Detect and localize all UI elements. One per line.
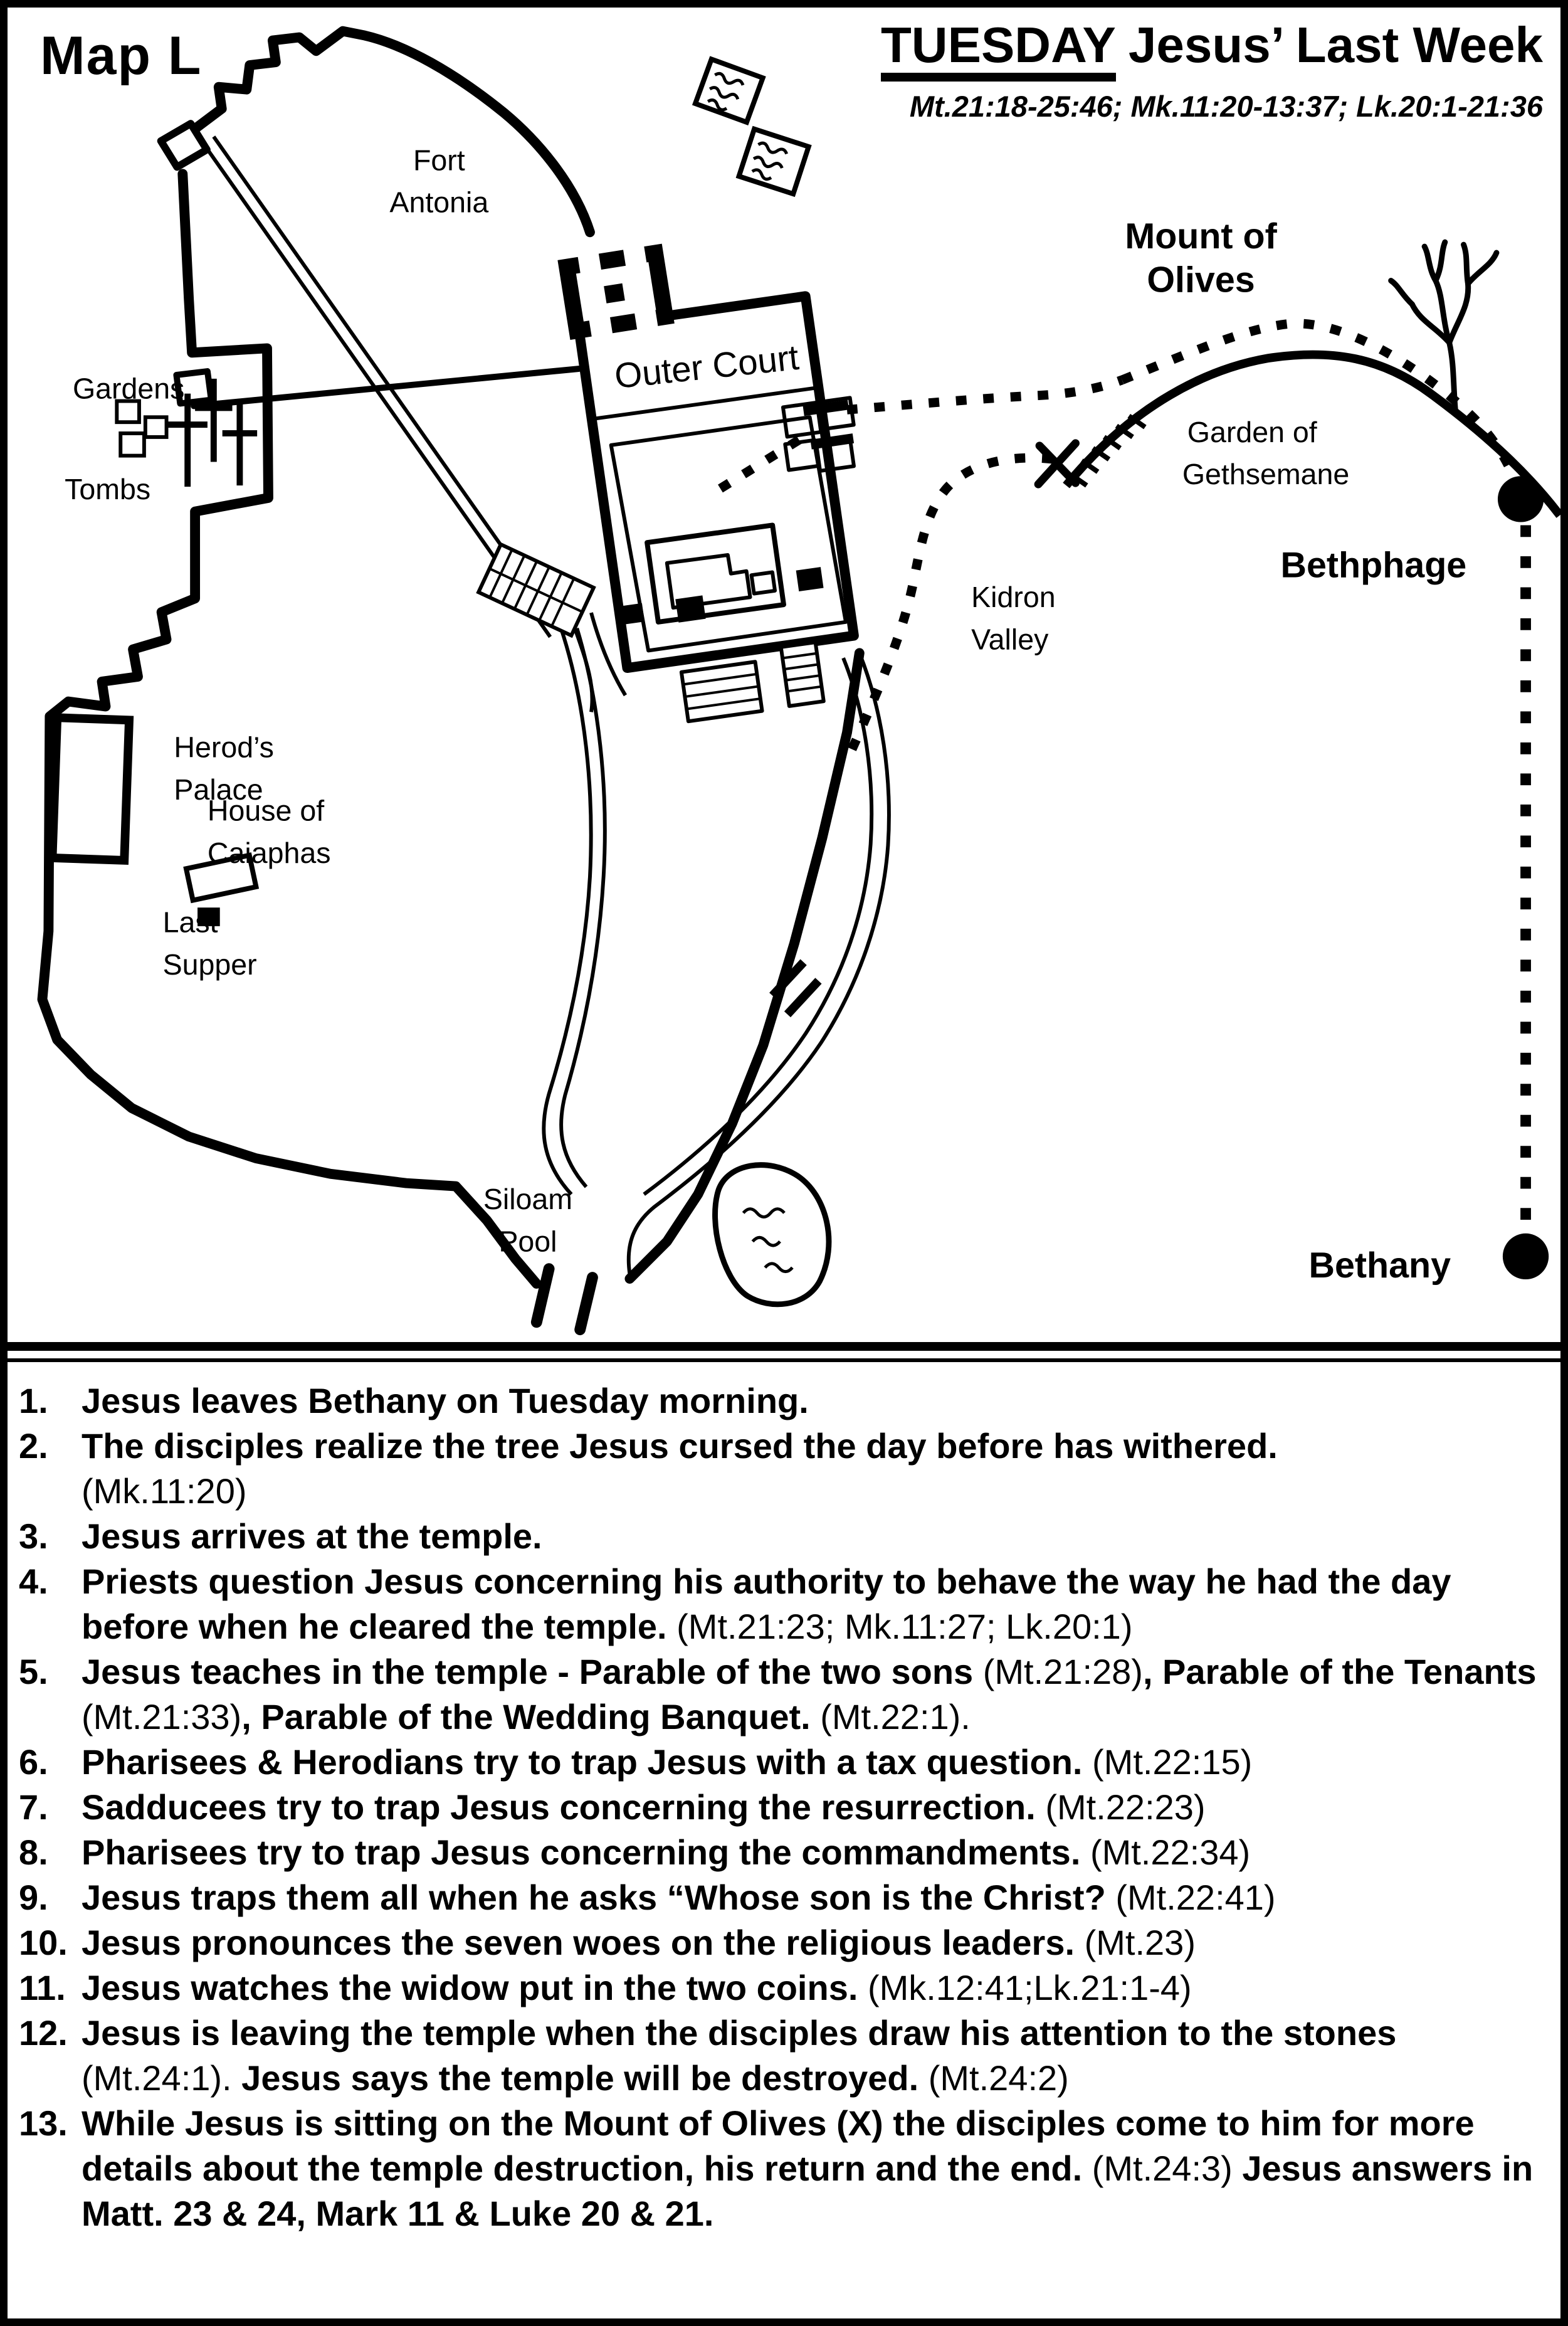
event-text-part: Pharisees & Herodians try to trap Jesus … [82, 1742, 1092, 1782]
event-item: 4.Priests question Jesus concerning his … [19, 1559, 1544, 1649]
label-fort-antonia: Antonia [389, 186, 488, 219]
event-text-part: Jesus pronounces the seven woes on the r… [82, 1923, 1085, 1962]
event-scripture-ref: (Mt.22:15) [1092, 1742, 1252, 1782]
garden-square-icon [117, 401, 166, 456]
event-scripture-ref: (Mt.21:33) [82, 1697, 241, 1737]
event-item: 12.Jesus is leaving the temple when the … [19, 2011, 1544, 2101]
map-section: Map L TUESDAYJesus’ Last Week Mt.21:18-2… [8, 8, 1560, 1351]
event-text-part: Jesus traps them all when he asks “Whose… [82, 1878, 1115, 1917]
event-text: Jesus teaches in the temple - Parable of… [82, 1649, 1544, 1740]
event-number: 13. [19, 2101, 82, 2146]
herods-palace-building [52, 717, 129, 860]
event-number: 11. [19, 1965, 82, 2011]
event-number: 12. [19, 2011, 82, 2056]
event-item: 6.Pharisees & Herodians try to trap Jesu… [19, 1740, 1544, 1785]
bethphage-dot [1498, 476, 1544, 522]
siloam-pool [715, 1165, 829, 1304]
event-number: 9. [19, 1875, 82, 1920]
event-item: 1.Jesus leaves Bethany on Tuesday mornin… [19, 1378, 1544, 1424]
fig-tree-icon [695, 59, 809, 194]
event-text: Pharisees try to trap Jesus concerning t… [82, 1830, 1544, 1875]
label-siloam-pool: Pool [498, 1225, 557, 1258]
event-number: 5. [19, 1649, 82, 1694]
event-text-part: Jesus says the temple will be destroyed. [232, 2058, 929, 2098]
event-number: 3. [19, 1514, 82, 1559]
event-number: 10. [19, 1920, 82, 1965]
event-scripture-ref: (Mt.23) [1085, 1923, 1196, 1962]
label-siloam-pool: Siloam [483, 1183, 572, 1215]
x-marker [1038, 443, 1075, 484]
event-number: 1. [19, 1378, 82, 1424]
event-text: Jesus is leaving the temple when the dis… [82, 2011, 1544, 2101]
event-scripture-ref: (Mt.24:2) [929, 2058, 1069, 2098]
event-scripture-ref: (Mt.22:41) [1115, 1878, 1275, 1917]
event-text: Jesus pronounces the seven woes on the r… [82, 1920, 1544, 1965]
event-number: 7. [19, 1785, 82, 1830]
fort-antonia-building [557, 238, 676, 346]
event-scripture-ref: (Mt.21:28) [983, 1652, 1143, 1691]
withered-tree-icon [1391, 242, 1497, 412]
label-gardens: Gardens [73, 373, 184, 405]
event-item: 13.While Jesus is sitting on the Mount o… [19, 2101, 1544, 2236]
label-last-supper: Supper [163, 948, 257, 981]
event-item: 2.The disciples realize the tree Jesus c… [19, 1424, 1544, 1514]
event-text-part: Jesus arrives at the temple. [82, 1516, 542, 1556]
event-item: 7.Sadducees try to trap Jesus concerning… [19, 1785, 1544, 1830]
event-text: Jesus arrives at the temple. [82, 1514, 1544, 1559]
label-house-of-caiaphas: Caiaphas [208, 837, 331, 869]
event-scripture-ref: (Mt.22:1). [820, 1697, 971, 1737]
event-text-part: Jesus is leaving the temple when the dis… [82, 2013, 1396, 2053]
label-last-supper: Last [163, 906, 218, 939]
event-item: 8.Pharisees try to trap Jesus concerning… [19, 1830, 1544, 1875]
label-herods-palace: Herod’s [174, 731, 274, 764]
event-scripture-ref: (Mt.24:1). [82, 2058, 232, 2098]
event-number: 4. [19, 1559, 82, 1604]
event-scripture-ref: (Mt.22:34) [1090, 1832, 1250, 1872]
event-item: 11.Jesus watches the widow put in the tw… [19, 1965, 1544, 2011]
event-text: While Jesus is sitting on the Mount of O… [82, 2101, 1544, 2236]
event-text-part: Sadducees try to trap Jesus concerning t… [82, 1787, 1045, 1827]
event-text-part: , Parable of the Wedding Banquet. [241, 1697, 820, 1737]
event-item: 3.Jesus arrives at the temple. [19, 1514, 1544, 1559]
label-bethany: Bethany [1309, 1245, 1451, 1286]
event-text: The disciples realize the tree Jesus cur… [82, 1424, 1544, 1514]
event-text: Jesus traps them all when he asks “Whose… [82, 1875, 1544, 1920]
event-item: 10.Jesus pronounces the seven woes on th… [19, 1920, 1544, 1965]
event-text: Pharisees & Herodians try to trap Jesus … [82, 1740, 1544, 1785]
event-text: Jesus watches the widow put in the two c… [82, 1965, 1544, 2011]
event-number: 6. [19, 1740, 82, 1785]
event-item: 5.Jesus teaches in the temple - Parable … [19, 1649, 1544, 1740]
label-mount-of-olives: Olives [1147, 260, 1255, 300]
event-scripture-ref: (Mt.24:3) [1092, 2149, 1233, 2188]
event-scripture-ref: (Mk.11:20) [82, 1471, 246, 1511]
event-text-part: Jesus teaches in the temple - Parable of… [82, 1652, 983, 1691]
event-text: Jesus leaves Bethany on Tuesday morning. [82, 1378, 1544, 1424]
label-garden-of-gethsemane: Gethsemane [1182, 458, 1349, 490]
event-number: 2. [19, 1424, 82, 1469]
label-fort-antonia: Fort [413, 144, 465, 176]
event-scripture-ref: (Mk.12:41;Lk.21:1-4) [868, 1968, 1192, 2007]
section-divider [8, 1351, 1560, 1362]
label-kidron-valley: Kidron [971, 581, 1056, 613]
bethany-dot [1503, 1234, 1549, 1279]
event-scripture-ref: (Mt.22:23) [1045, 1787, 1205, 1827]
jerusalem-map: Fort Antonia Outer Court Mount of Olives… [8, 8, 1560, 1342]
label-bethphage: Bethphage [1281, 546, 1467, 586]
event-text-part: , Parable of the Tenants [1143, 1652, 1537, 1691]
event-text-part: The disciples realize the tree Jesus cur… [82, 1426, 1278, 1466]
label-tombs: Tombs [65, 473, 150, 505]
event-text: Priests question Jesus concerning his au… [82, 1559, 1544, 1649]
page: Map L TUESDAYJesus’ Last Week Mt.21:18-2… [0, 0, 1568, 2326]
event-text: Sadducees try to trap Jesus concerning t… [82, 1785, 1544, 1830]
label-kidron-valley: Valley [971, 623, 1049, 655]
event-item: 9.Jesus traps them all when he asks “Who… [19, 1875, 1544, 1920]
bridge-steps [478, 544, 594, 635]
label-mount-of-olives: Mount of [1125, 216, 1277, 256]
event-text-part: Jesus leaves Bethany on Tuesday morning. [82, 1381, 809, 1420]
label-house-of-caiaphas: House of [208, 795, 324, 827]
event-text-part: Jesus watches the widow put in the two c… [82, 1968, 868, 2007]
label-garden-of-gethsemane: Garden of [1187, 416, 1317, 448]
events-list: 1.Jesus leaves Bethany on Tuesday mornin… [8, 1362, 1560, 2236]
event-text-part: Pharisees try to trap Jesus concerning t… [82, 1832, 1090, 1872]
event-scripture-ref: (Mt.21:23; Mk.11:27; Lk.20:1) [676, 1607, 1132, 1646]
event-number: 8. [19, 1830, 82, 1875]
